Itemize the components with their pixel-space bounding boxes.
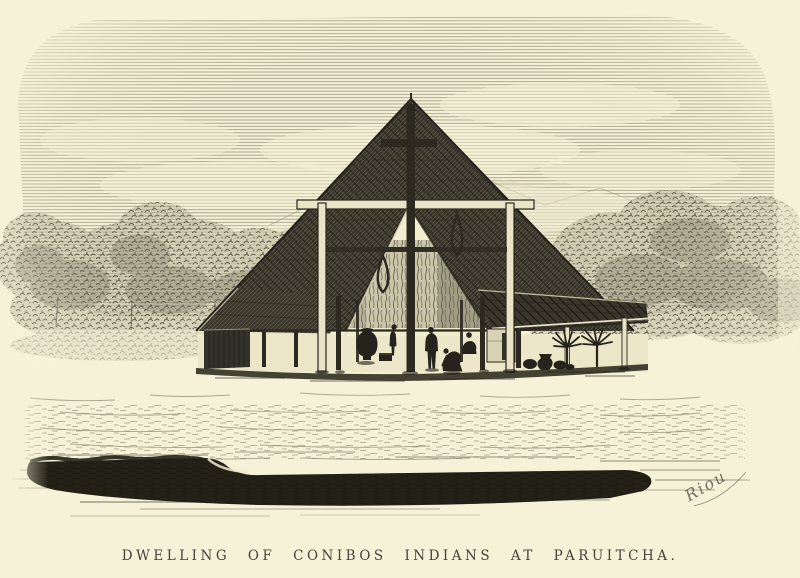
right-corner-post	[622, 318, 627, 368]
right-wing-post	[516, 329, 521, 368]
engraving-illustration: Riou	[0, 0, 800, 578]
caption: DWELLING OF CONIBOS INDIANS AT PARUITCHA…	[0, 548, 800, 568]
left-plank-wall	[204, 329, 250, 369]
wooden-box	[379, 353, 392, 361]
engraving-plate: Riou DWELLING OF CONIBOS INDIANS AT PARU…	[0, 0, 800, 578]
